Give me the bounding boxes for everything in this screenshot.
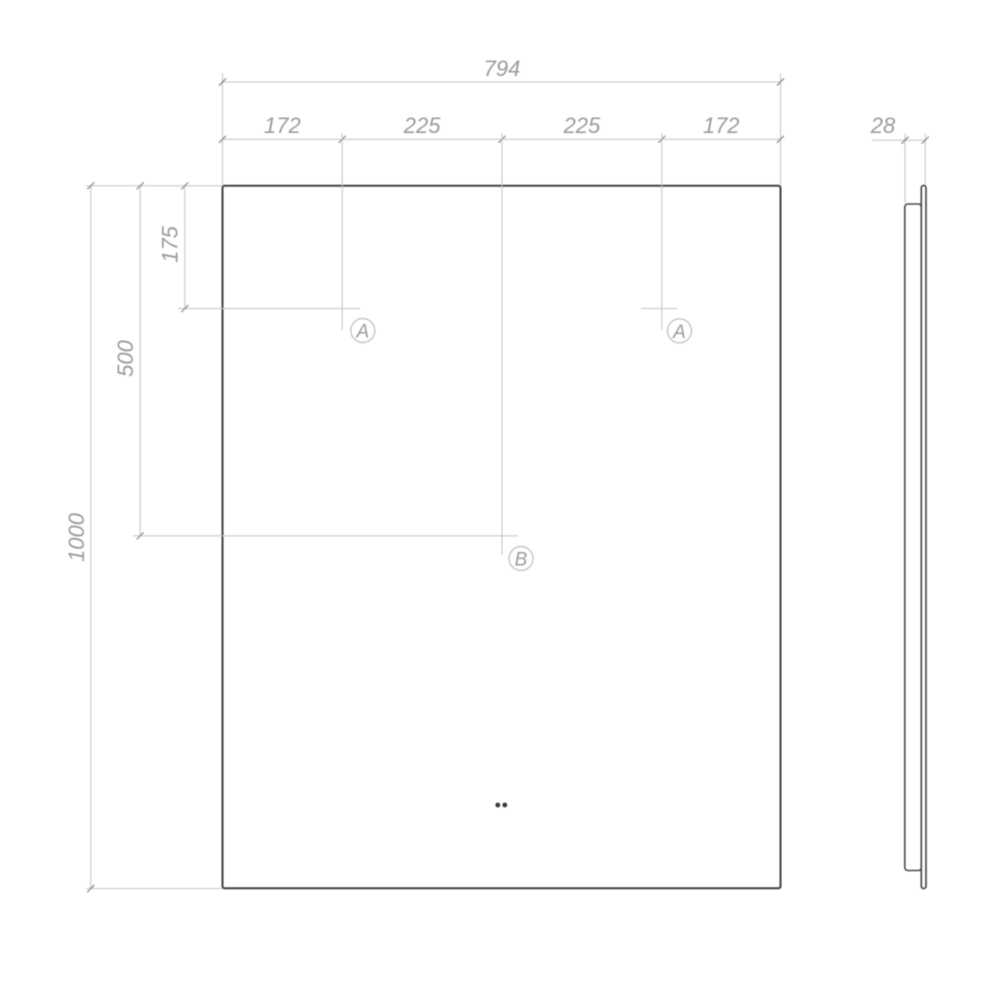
svg-text:1000: 1000 <box>64 512 89 562</box>
svg-text:225: 225 <box>563 113 601 138</box>
svg-text:172: 172 <box>264 113 301 138</box>
svg-text:172: 172 <box>703 113 740 138</box>
svg-text:794: 794 <box>484 56 521 81</box>
svg-text:225: 225 <box>403 113 441 138</box>
svg-text:500: 500 <box>113 339 138 376</box>
svg-text:175: 175 <box>158 225 183 262</box>
svg-text:B: B <box>515 550 528 571</box>
svg-text:28: 28 <box>870 113 896 138</box>
svg-text:A: A <box>355 322 369 343</box>
svg-text:A: A <box>672 322 686 343</box>
